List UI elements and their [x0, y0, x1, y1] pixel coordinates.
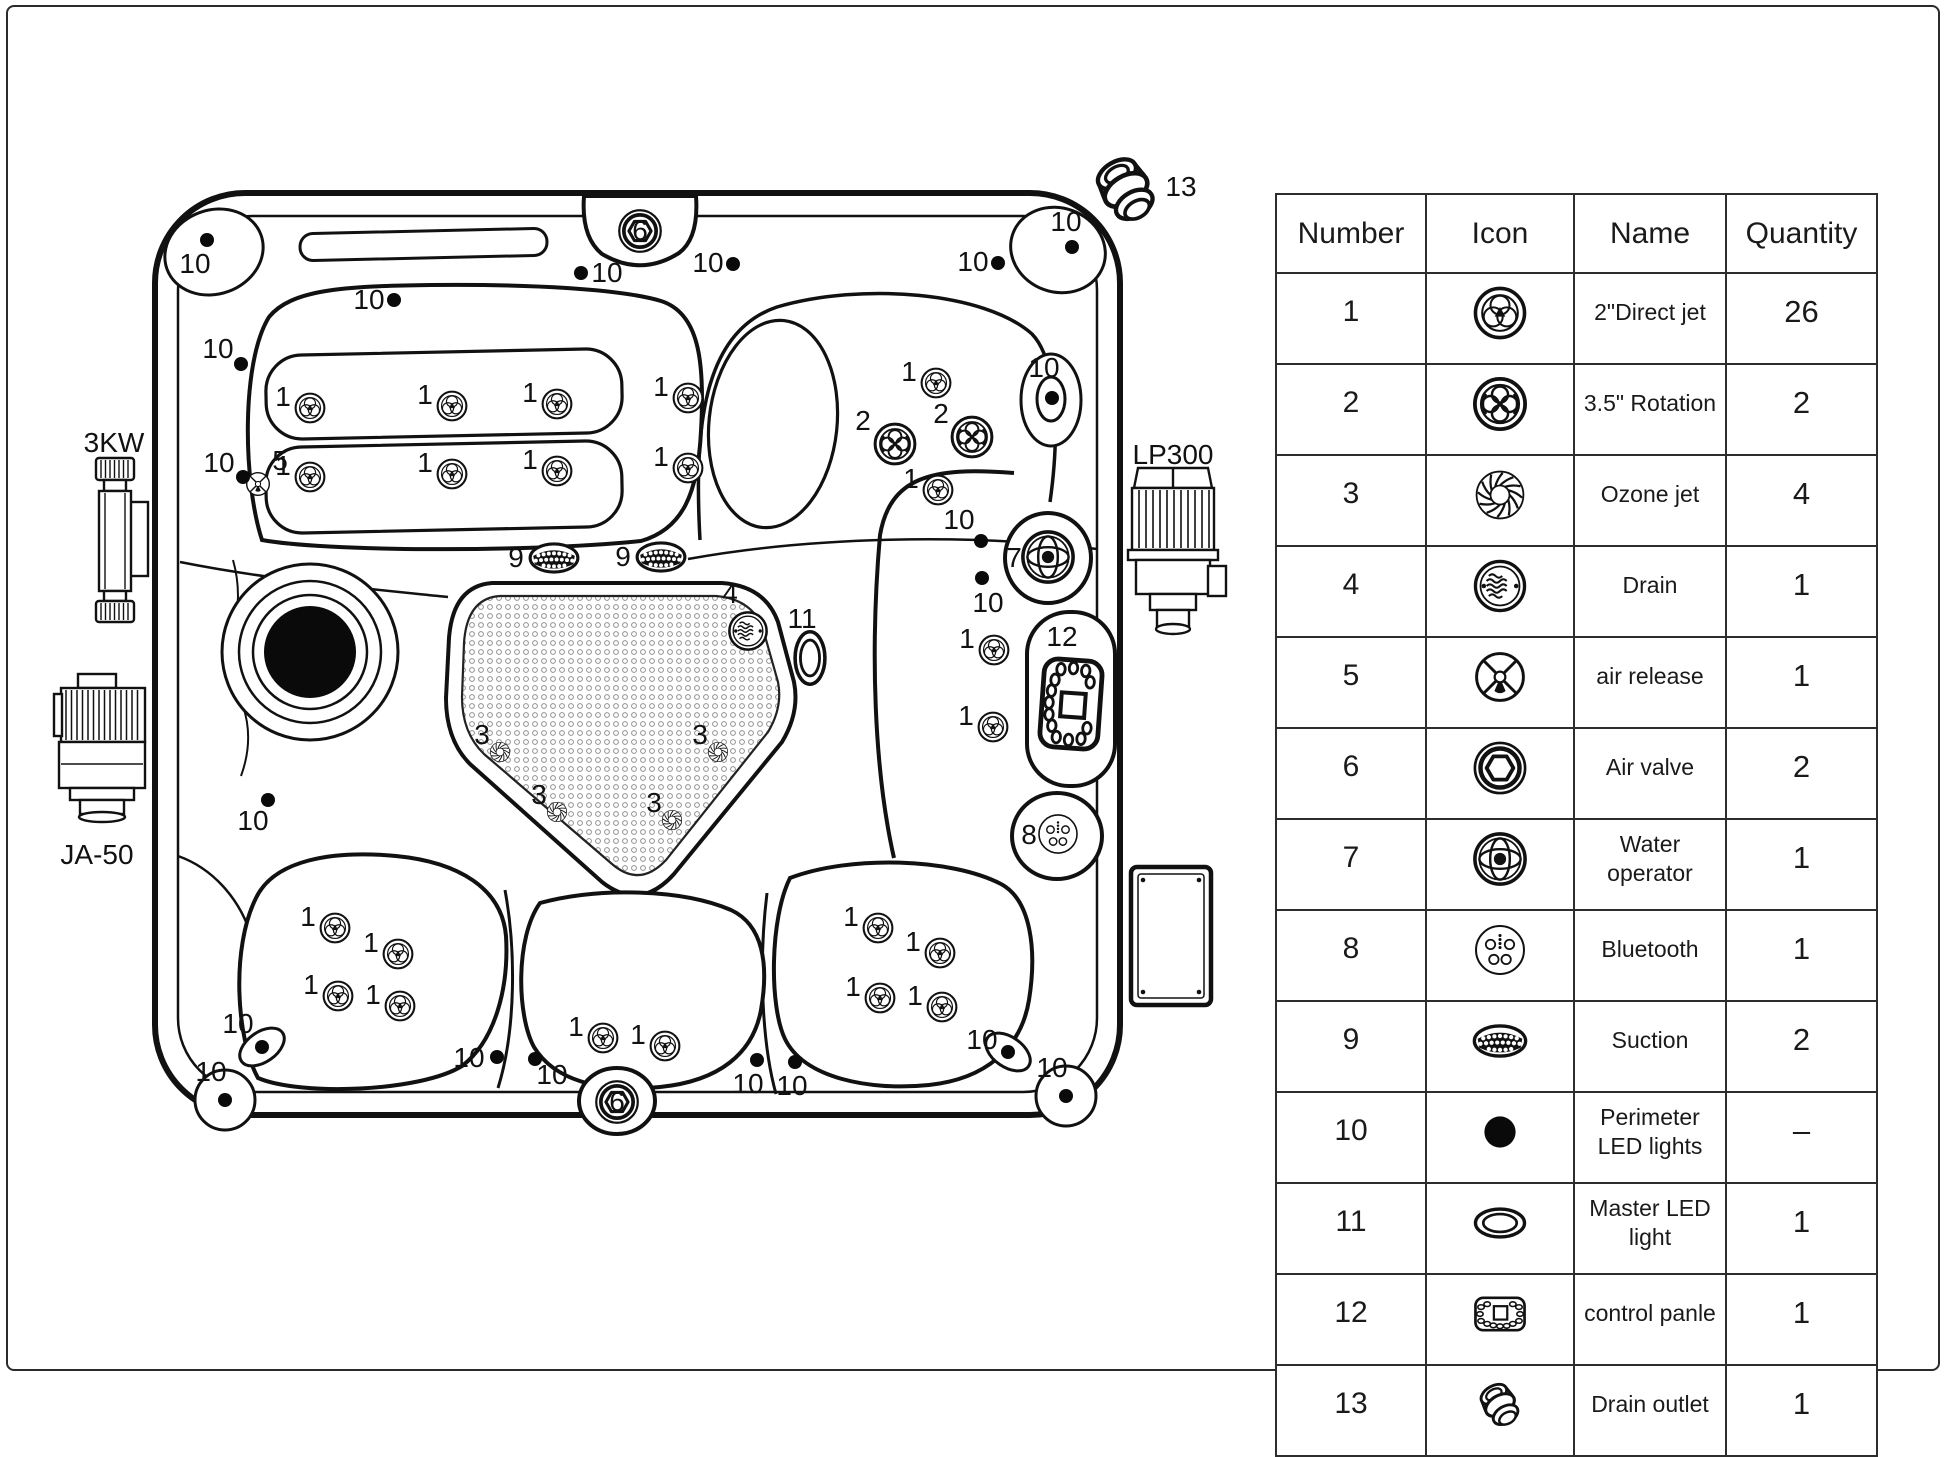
part-quantity: 26	[1726, 273, 1877, 364]
perimeter-led-dot	[490, 1050, 504, 1064]
callout-label: 10	[776, 1070, 807, 1101]
callout-label: 12	[1046, 621, 1077, 652]
callout-label: 1	[417, 447, 433, 478]
callout-label: 4	[722, 578, 738, 609]
callout-label: 3	[692, 719, 708, 750]
jet1-icon	[589, 1024, 618, 1053]
table-row: 4 Drain 1	[1276, 546, 1877, 637]
part-quantity: 1	[1726, 910, 1877, 1001]
callout-label: 6	[609, 1086, 625, 1117]
part-icon-cell	[1426, 910, 1574, 1001]
callout-label: 1	[275, 381, 291, 412]
table-row: 9 Suction 2	[1276, 1001, 1877, 1092]
part-name: Bluetooth	[1574, 910, 1726, 1001]
callout-label: 9	[508, 542, 524, 573]
suction-icon	[530, 544, 578, 572]
fitting-icon	[1471, 1376, 1529, 1434]
part-name: Master LED light	[1574, 1183, 1726, 1274]
part-number: 12	[1276, 1274, 1426, 1365]
perimeter-led-dot	[991, 256, 1005, 270]
perimeter-led-dot	[726, 257, 740, 271]
table-row: 1 2"Direct jet 26	[1276, 273, 1877, 364]
part-icon-cell	[1426, 728, 1574, 819]
callout-label: 10	[353, 284, 384, 315]
part-quantity: 4	[1726, 455, 1877, 546]
wateroperator-icon	[1023, 532, 1073, 582]
callout-label: 1	[568, 1011, 584, 1042]
table-row: 3 Ozone jet 4	[1276, 455, 1877, 546]
part-icon-cell	[1426, 273, 1574, 364]
heater-3kw-label: 3KW	[84, 427, 145, 458]
perimeter-led-dot	[255, 1040, 269, 1054]
jet1-icon	[438, 460, 467, 489]
perimeter-led-dot	[218, 1093, 232, 1107]
callout-label: 1	[845, 971, 861, 1002]
ozone-icon	[490, 742, 509, 761]
callout-label: 1	[958, 700, 974, 731]
part-quantity: 1	[1726, 546, 1877, 637]
callout-label: 1	[959, 623, 975, 654]
jet1-icon	[922, 369, 951, 398]
headrest-pillow	[300, 228, 548, 261]
airrelease-icon	[1471, 648, 1529, 706]
part-number: 4	[1276, 546, 1426, 637]
perimeter-led-dot	[574, 266, 588, 280]
callout-label: 1	[522, 444, 538, 475]
col-header-name: Name	[1574, 194, 1726, 273]
jet1-icon	[924, 476, 953, 505]
callout-label: 2	[933, 398, 949, 429]
pump-ja50	[54, 674, 145, 822]
part-number: 6	[1276, 728, 1426, 819]
callout-label: 1	[903, 463, 919, 494]
callout-label: 10	[237, 805, 268, 836]
jet1-icon	[926, 939, 955, 968]
jet1-icon	[438, 392, 467, 421]
jet1-icon	[980, 636, 1009, 665]
part-number: 11	[1276, 1183, 1426, 1274]
part-quantity: 2	[1726, 1001, 1877, 1092]
table-row: 11 Master LED light 1	[1276, 1183, 1877, 1274]
callout-label: 10	[1028, 352, 1059, 383]
table-row: 13 Drain outlet 1	[1276, 1365, 1877, 1456]
part-quantity: 2	[1726, 728, 1877, 819]
perimeter-led-dot	[234, 357, 248, 371]
part-name: air release	[1574, 637, 1726, 728]
jet1-icon	[928, 993, 957, 1022]
part-icon-cell	[1426, 1365, 1574, 1456]
part-name: 2"Direct jet	[1574, 273, 1726, 364]
part-number: 5	[1276, 637, 1426, 728]
callout-label: 10	[536, 1059, 567, 1090]
jet1-icon	[674, 384, 703, 413]
suction-icon	[1471, 1012, 1529, 1070]
callout-label: 1	[522, 377, 538, 408]
part-icon-cell	[1426, 1001, 1574, 1092]
callout-label: 9	[615, 541, 631, 572]
perimeter-led-dot	[788, 1055, 802, 1069]
jet1-icon	[296, 463, 325, 492]
jet1-icon	[866, 984, 895, 1013]
col-header-icon: Icon	[1426, 194, 1574, 273]
jet2-icon	[952, 417, 992, 457]
panel-icon	[1039, 658, 1103, 750]
master-led-icon	[795, 632, 825, 684]
table-row: 2 3.5" Rotation 2	[1276, 364, 1877, 455]
part-name: Drain outlet	[1574, 1365, 1726, 1456]
callout-label: 10	[591, 257, 622, 288]
callout-label: 3	[646, 787, 662, 818]
heater-3kw	[96, 458, 148, 622]
col-header-quantity: Quantity	[1726, 194, 1877, 273]
jet1-icon	[864, 914, 893, 943]
callout-label: 10	[1036, 1052, 1067, 1083]
callout-label: 1	[363, 927, 379, 958]
parts-table-body: 1 2"Direct jet 26 2 3.5" Rotation 2 3 Oz…	[1276, 273, 1877, 1456]
wateroperator-icon	[1471, 830, 1529, 888]
master-led-icon	[1471, 1194, 1529, 1252]
part-icon-cell	[1426, 546, 1574, 637]
table-row: 5 air release 1	[1276, 637, 1877, 728]
col-header-number: Number	[1276, 194, 1426, 273]
part-number: 1	[1276, 273, 1426, 364]
filter-assembly	[222, 564, 398, 740]
part-name: Air valve	[1574, 728, 1726, 819]
parts-table: Number Icon Name Quantity 1 2"Direct jet…	[1275, 193, 1878, 1457]
callout-label: 1	[365, 979, 381, 1010]
perimeter-led-dot	[750, 1053, 764, 1067]
jet1-icon	[979, 713, 1008, 742]
part-icon-cell	[1426, 819, 1574, 910]
drain-outlet-label: 13	[1165, 171, 1196, 202]
part-number: 13	[1276, 1365, 1426, 1456]
callout-label: 10	[179, 248, 210, 279]
part-quantity: –	[1726, 1092, 1877, 1183]
jet1-icon	[651, 1032, 680, 1061]
callout-label: 10	[943, 504, 974, 535]
pump-ja50-label: JA-50	[60, 839, 133, 870]
perimeter-led-dot	[387, 293, 401, 307]
jet1-icon	[543, 457, 572, 486]
part-number: 3	[1276, 455, 1426, 546]
callout-label: 2	[855, 405, 871, 436]
part-number: 7	[1276, 819, 1426, 910]
callout-label: 10	[957, 246, 988, 277]
perimeter-led-dot	[1001, 1045, 1015, 1059]
bluetooth-icon	[1471, 921, 1529, 979]
jet1-icon	[674, 454, 703, 483]
led-dot-icon	[1471, 1103, 1529, 1161]
part-name: 3.5" Rotation	[1574, 364, 1726, 455]
callout-label: 1	[303, 969, 319, 1000]
perimeter-led-dot	[974, 534, 988, 548]
jet1-icon	[386, 992, 415, 1021]
callout-label: 10	[972, 587, 1003, 618]
perimeter-led-dot	[1045, 391, 1059, 405]
callout-label: 3	[531, 779, 547, 810]
callout-label: 10	[732, 1068, 763, 1099]
jet1-icon	[321, 914, 350, 943]
callout-label: 1	[843, 901, 859, 932]
part-quantity: 1	[1726, 1365, 1877, 1456]
pump-lp300	[1128, 468, 1226, 634]
callout-label: 11	[787, 603, 816, 634]
part-number: 8	[1276, 910, 1426, 1001]
part-number: 10	[1276, 1092, 1426, 1183]
part-icon-cell	[1426, 1183, 1574, 1274]
jet1-icon	[296, 394, 325, 423]
panel-icon	[1471, 1285, 1529, 1343]
airrelease-icon	[247, 473, 270, 496]
part-name: Suction	[1574, 1001, 1726, 1092]
callout-label: 10	[1050, 206, 1081, 237]
callout-label: 10	[203, 447, 234, 478]
ozone-icon	[708, 742, 727, 761]
part-icon-cell	[1426, 364, 1574, 455]
part-name: control panle	[1574, 1274, 1726, 1365]
perimeter-led-dot	[236, 470, 250, 484]
callout-label: 8	[1021, 819, 1037, 850]
perimeter-led-dot	[200, 233, 214, 247]
part-icon-cell	[1426, 1274, 1574, 1365]
part-icon-cell	[1426, 637, 1574, 728]
drain-icon	[729, 612, 766, 649]
callout-label: 3	[474, 719, 490, 750]
callout-label: 1	[630, 1019, 646, 1050]
part-number: 2	[1276, 364, 1426, 455]
part-name: Ozone jet	[1574, 455, 1726, 546]
callout-label: 1	[907, 980, 923, 1011]
suction-icon	[637, 543, 685, 571]
table-row: 6 Air valve 2	[1276, 728, 1877, 819]
jet1-icon	[384, 940, 413, 969]
callout-label: 6	[632, 215, 648, 246]
part-quantity: 1	[1726, 1183, 1877, 1274]
part-name: Water operator	[1574, 819, 1726, 910]
drain-outlet-icon	[1091, 152, 1162, 228]
callout-label: 5	[272, 445, 288, 476]
perimeter-led-dot	[1059, 1089, 1073, 1103]
part-name: Perimeter LED lights	[1574, 1092, 1726, 1183]
callout-label: 1	[300, 901, 316, 932]
part-number: 9	[1276, 1001, 1426, 1092]
table-row: 7 Water operator 1	[1276, 819, 1877, 910]
callout-label: 7	[1006, 542, 1022, 573]
callout-label: 10	[453, 1042, 484, 1073]
table-header-row: Number Icon Name Quantity	[1276, 194, 1877, 273]
jet2-icon	[875, 424, 915, 464]
jet1-icon	[324, 982, 353, 1011]
drain-icon	[1471, 557, 1529, 615]
jet2-icon	[1471, 375, 1529, 433]
part-quantity: 2	[1726, 364, 1877, 455]
callout-label: 10	[202, 333, 233, 364]
ozone-icon	[1471, 466, 1529, 524]
ozone-icon	[547, 802, 566, 821]
callout-label: 10	[195, 1056, 226, 1087]
part-icon-cell	[1426, 1092, 1574, 1183]
part-quantity: 1	[1726, 819, 1877, 910]
callout-label: 10	[222, 1008, 253, 1039]
airvalve-icon	[1471, 739, 1529, 797]
jet1-icon	[543, 390, 572, 419]
ozone-icon	[662, 810, 681, 829]
electric-box	[1131, 867, 1211, 1005]
table-row: 10 Perimeter LED lights –	[1276, 1092, 1877, 1183]
bluetooth-icon	[1039, 815, 1077, 853]
callout-label: 1	[901, 356, 917, 387]
callout-label: 10	[692, 247, 723, 278]
pump-lp300-label: LP300	[1133, 439, 1214, 470]
callout-label: 1	[905, 926, 921, 957]
callout-label: 1	[653, 371, 669, 402]
jet1-icon	[1471, 284, 1529, 342]
part-icon-cell	[1426, 455, 1574, 546]
perimeter-led-dot	[975, 571, 989, 585]
part-quantity: 1	[1726, 637, 1877, 728]
table-row: 12 control panle 1	[1276, 1274, 1877, 1365]
callout-label: 1	[653, 441, 669, 472]
perimeter-led-dot	[1065, 240, 1079, 254]
part-name: Drain	[1574, 546, 1726, 637]
callout-label: 10	[966, 1024, 997, 1055]
table-row: 8 Bluetooth 1	[1276, 910, 1877, 1001]
callout-label: 1	[417, 379, 433, 410]
part-quantity: 1	[1726, 1274, 1877, 1365]
